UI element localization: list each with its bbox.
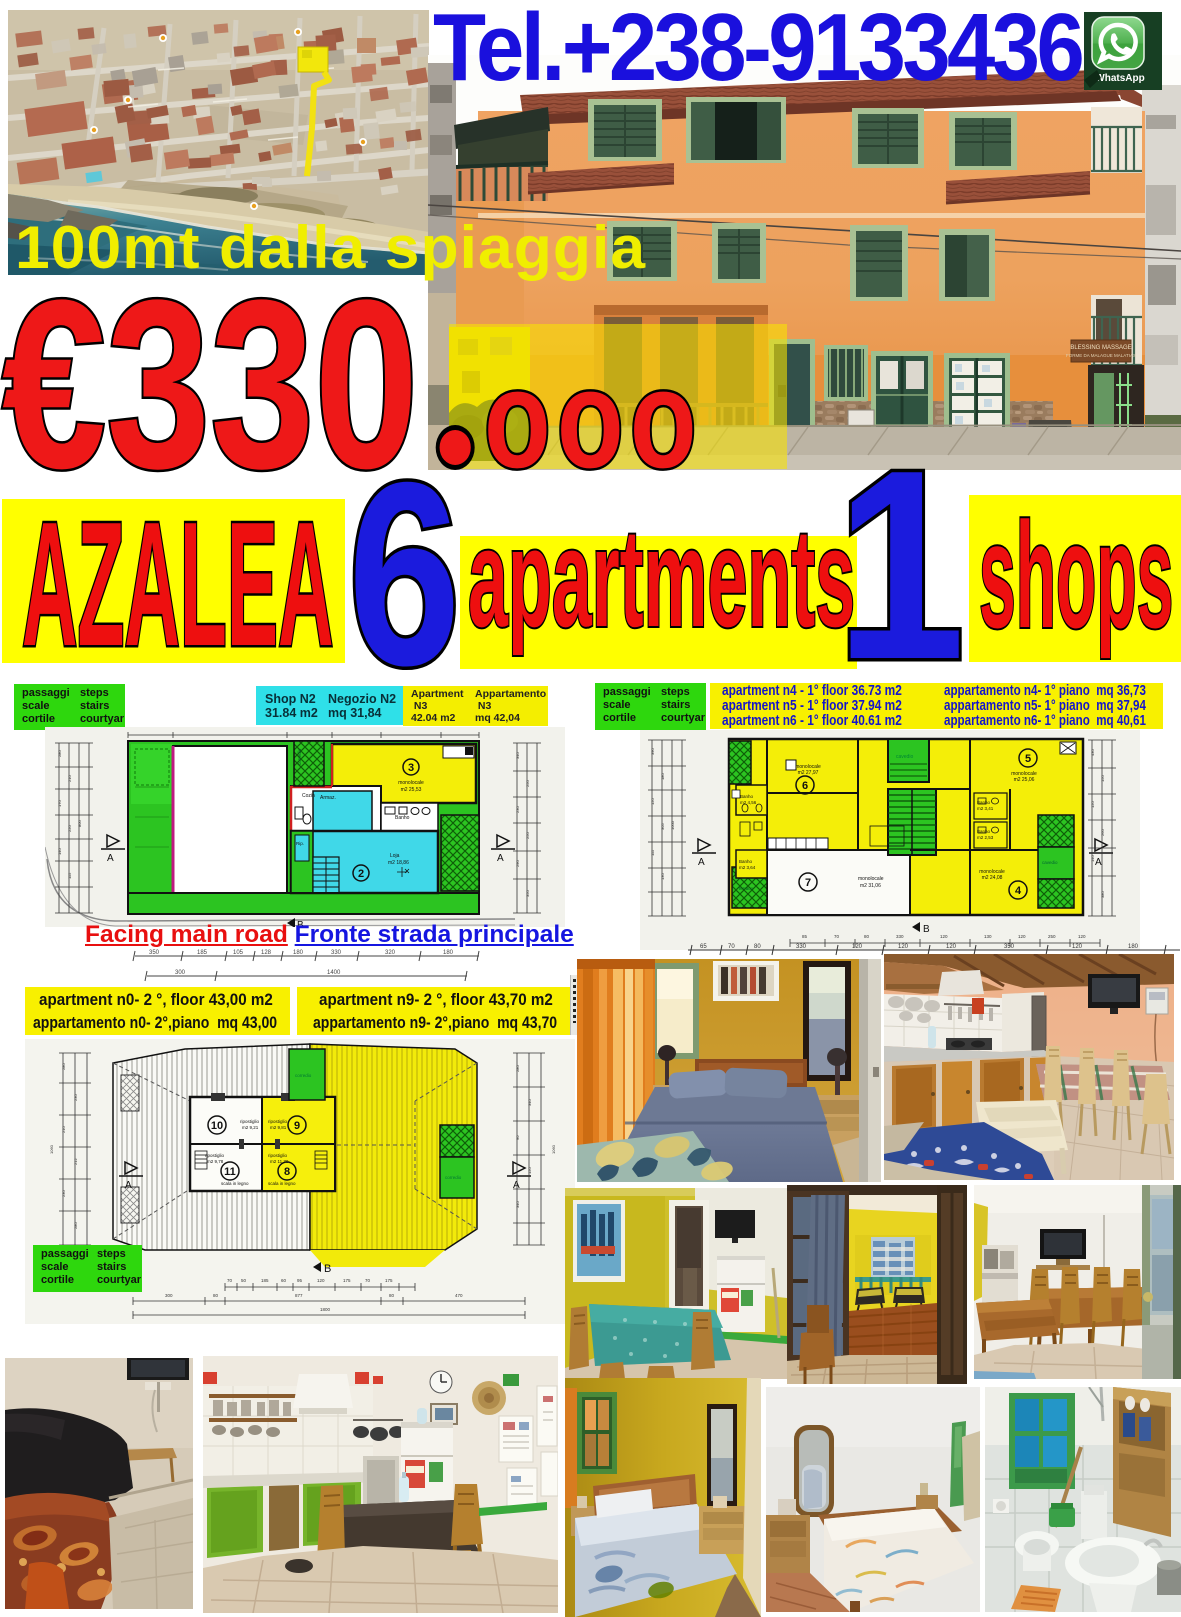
svg-text:380: 380: [1100, 891, 1105, 898]
svg-text:130: 130: [660, 873, 665, 880]
svg-text:m2 9,81: m2 9,81: [270, 1125, 287, 1130]
svg-text:Banho: Banho: [395, 815, 410, 821]
svg-text:10: 10: [211, 1120, 223, 1132]
svg-text:140: 140: [57, 848, 62, 855]
svg-text:175: 175: [343, 1278, 351, 1283]
svg-text:m2 4,56: m2 4,56: [740, 800, 757, 805]
svg-text:FORME DA MALAGUE MALATIAS: FORME DA MALAGUE MALATIAS: [1066, 353, 1136, 358]
svg-text:175: 175: [385, 1278, 393, 1283]
svg-text:210: 210: [67, 775, 72, 782]
svg-text:180: 180: [1128, 944, 1139, 950]
svg-text:m2 31,06: m2 31,06: [860, 883, 881, 889]
svg-text:210: 210: [61, 1126, 66, 1133]
svg-text:Cozin: Cozin: [302, 793, 315, 799]
svg-text:8: 8: [284, 1166, 290, 1178]
svg-text:ripostiglio: ripostiglio: [268, 1119, 288, 1124]
svg-text:corredio: corredio: [445, 1175, 462, 1180]
svg-text:cavedio: cavedio: [1042, 860, 1058, 865]
svg-text:2: 2: [358, 868, 364, 880]
svg-text:470: 470: [455, 1293, 463, 1298]
svg-text:340: 340: [527, 1099, 532, 1106]
svg-text:1060: 1060: [551, 1144, 556, 1154]
svg-text:Rip.: Rip.: [296, 841, 304, 846]
svg-text:280: 280: [73, 1222, 78, 1229]
svg-text:800: 800: [77, 820, 82, 827]
svg-text:70: 70: [728, 944, 735, 950]
svg-text:170: 170: [57, 800, 62, 807]
svg-text:120: 120: [527, 1167, 532, 1174]
svg-text:90: 90: [515, 1135, 520, 1140]
svg-text:1060: 1060: [49, 1144, 54, 1154]
svg-text:70: 70: [227, 1278, 233, 1283]
svg-text:6: 6: [802, 780, 808, 792]
svg-text:m2 9,78: m2 9,78: [207, 1159, 224, 1164]
svg-text:1800: 1800: [320, 1307, 331, 1312]
svg-text:Terraco: Terraco: [738, 886, 754, 891]
svg-text:120: 120: [1072, 944, 1083, 950]
svg-text:ripostiglio: ripostiglio: [268, 1153, 288, 1158]
svg-text:120: 120: [1078, 934, 1086, 939]
svg-text:120: 120: [1090, 801, 1095, 808]
svg-text:105: 105: [233, 950, 244, 956]
svg-text:350: 350: [525, 890, 530, 897]
svg-text:A: A: [107, 853, 114, 864]
svg-text:340: 340: [515, 1201, 520, 1208]
svg-text:230: 230: [515, 806, 520, 813]
svg-text:120: 120: [1018, 934, 1026, 939]
svg-text:m2 18,86: m2 18,86: [388, 860, 409, 866]
svg-text:4: 4: [1015, 885, 1022, 897]
svg-text:120: 120: [317, 1278, 325, 1283]
svg-text:230: 230: [61, 1190, 66, 1197]
svg-text:280: 280: [61, 1063, 66, 1070]
svg-text:300: 300: [165, 1293, 173, 1298]
svg-text:11: 11: [224, 1166, 236, 1178]
svg-text:180: 180: [660, 773, 665, 780]
svg-text:80: 80: [389, 1293, 395, 1298]
svg-text:65: 65: [700, 944, 707, 950]
svg-text:scala in legno: scala in legno: [221, 1181, 249, 1186]
svg-text:ripostiglio: ripostiglio: [240, 1119, 260, 1124]
svg-text:300: 300: [175, 970, 186, 976]
svg-text:250: 250: [525, 780, 530, 787]
svg-text:7: 7: [805, 877, 811, 889]
svg-text:70: 70: [365, 1278, 371, 1283]
svg-text:50: 50: [241, 1278, 247, 1283]
svg-text:m2 25,06: m2 25,06: [1014, 777, 1035, 783]
svg-text:A: A: [698, 857, 705, 868]
svg-text:monolocale: monolocale: [858, 876, 884, 882]
svg-text:280: 280: [515, 1065, 520, 1072]
svg-text:877: 877: [295, 1293, 303, 1298]
svg-text:120: 120: [940, 934, 948, 939]
svg-text:140: 140: [1090, 855, 1095, 862]
svg-text:1400: 1400: [327, 970, 341, 976]
svg-text:350: 350: [1004, 944, 1015, 950]
svg-text:B: B: [923, 924, 930, 935]
svg-text:A: A: [497, 853, 504, 864]
svg-text:128: 128: [261, 950, 272, 956]
svg-text:430: 430: [1090, 749, 1095, 756]
svg-text:330: 330: [331, 950, 342, 956]
svg-text:305: 305: [660, 823, 665, 830]
svg-text:290: 290: [515, 860, 520, 867]
svg-text:330: 330: [796, 944, 807, 950]
svg-text:cavedio: cavedio: [896, 754, 913, 760]
svg-text:ripostiglio: ripostiglio: [205, 1153, 225, 1158]
svg-text:220: 220: [67, 825, 72, 832]
svg-text:m2 25,53: m2 25,53: [401, 787, 422, 793]
svg-text:185: 185: [261, 1278, 269, 1283]
svg-text:80: 80: [754, 944, 761, 950]
svg-text:m2 24,08: m2 24,08: [982, 875, 1003, 881]
svg-text:130: 130: [984, 934, 992, 939]
svg-text:Banho: Banho: [740, 794, 754, 799]
svg-text:120: 120: [852, 944, 863, 950]
svg-text:corredio: corredio: [295, 1073, 312, 1078]
svg-text:70: 70: [834, 934, 840, 939]
svg-text:390: 390: [650, 748, 655, 755]
svg-text:corredio: corredio: [297, 748, 302, 765]
svg-text:m2 11,70: m2 11,70: [270, 1159, 289, 1164]
svg-text:WhatsApp: WhatsApp: [1095, 73, 1144, 84]
svg-text:150: 150: [1100, 775, 1105, 782]
svg-text:m2 3,41: m2 3,41: [977, 806, 994, 811]
svg-text:180: 180: [443, 950, 454, 956]
svg-text:115: 115: [67, 872, 72, 879]
svg-text:A: A: [1095, 857, 1102, 868]
svg-text:1000: 1000: [670, 820, 675, 830]
svg-text:Armaz.: Armaz.: [320, 795, 336, 801]
svg-text:80: 80: [864, 934, 870, 939]
svg-text:280: 280: [57, 750, 62, 757]
svg-text:95: 95: [297, 1278, 303, 1283]
svg-text:m2 3,64: m2 3,64: [739, 865, 756, 870]
svg-text:250: 250: [1048, 934, 1056, 939]
svg-text:120: 120: [650, 798, 655, 805]
svg-text:BLESSING MASSAGE: BLESSING MASSAGE: [1070, 345, 1131, 351]
svg-text:350: 350: [149, 950, 160, 956]
svg-text:Loja: Loja: [390, 853, 400, 859]
svg-text:A: A: [125, 1180, 132, 1191]
svg-text:3: 3: [408, 762, 414, 774]
svg-text:330: 330: [896, 934, 904, 939]
svg-text:80: 80: [213, 1293, 219, 1298]
svg-text:60: 60: [281, 1278, 287, 1283]
svg-text:111: 111: [650, 849, 655, 856]
svg-text:120: 120: [898, 944, 909, 950]
svg-text:185: 185: [197, 950, 208, 956]
svg-text:scala in legno: scala in legno: [268, 1181, 296, 1186]
svg-text:B: B: [324, 1263, 331, 1275]
svg-text:9: 9: [294, 1120, 300, 1132]
svg-text:m2 2,53: m2 2,53: [977, 835, 994, 840]
svg-text:260: 260: [1100, 829, 1105, 836]
svg-text:m2 9,21: m2 9,21: [242, 1125, 259, 1130]
svg-text:212: 212: [73, 1158, 78, 1165]
svg-text:250: 250: [525, 832, 530, 839]
svg-text:m2 27,97: m2 27,97: [798, 770, 819, 776]
svg-text:180: 180: [293, 950, 304, 956]
svg-text:340: 340: [515, 752, 520, 759]
svg-text:230: 230: [73, 1094, 78, 1101]
svg-text:monolocale: monolocale: [398, 780, 424, 786]
svg-text:5: 5: [1025, 753, 1031, 765]
svg-text:Banho: Banho: [739, 859, 753, 864]
svg-text:85: 85: [802, 934, 808, 939]
svg-text:120: 120: [946, 944, 957, 950]
svg-text:320: 320: [385, 950, 396, 956]
